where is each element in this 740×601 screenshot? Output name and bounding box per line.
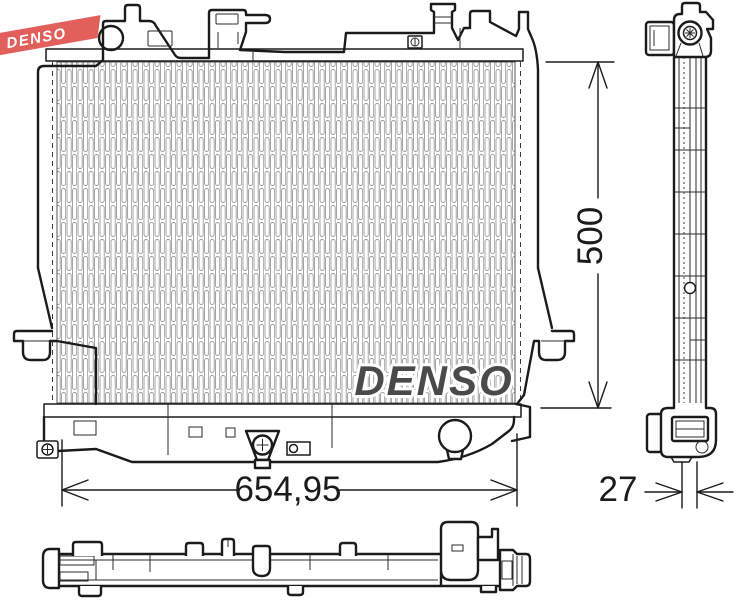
bottom-view-foot-1 <box>79 586 101 596</box>
side-top-cap-assembly <box>646 3 713 57</box>
bottom-tank-slot-2 <box>189 427 202 437</box>
bottom-view-body-edges <box>59 554 500 586</box>
width-dimension-value: 654,95 <box>234 470 341 509</box>
foot-left-bolt <box>37 441 58 458</box>
bottom-view-right-connector <box>500 550 530 590</box>
radiator-technical-drawing-page: DENSO DENSO <box>0 0 740 601</box>
bottom-view-inner-lines <box>59 554 438 580</box>
bottom-view-tab-2 <box>186 543 203 556</box>
bottom-bolt-bracket <box>287 442 310 455</box>
bottom-header-strip <box>44 404 521 417</box>
denso-watermark: DENSO <box>354 357 513 404</box>
bottom-view-pipe <box>441 522 478 586</box>
drain-plug <box>439 420 471 459</box>
radiator-bottom-view <box>43 522 530 596</box>
brand-ribbon: DENSO <box>0 15 104 60</box>
side-column-hole <box>685 283 696 294</box>
depth-dimension-value: 27 <box>599 470 638 509</box>
side-bottom-outlet-assembly <box>647 403 716 462</box>
dimension-depth: 27 <box>599 462 733 509</box>
height-dimension-value: 500 <box>571 207 610 265</box>
dimension-height: 500 <box>541 62 614 408</box>
bottom-tank-slot-3 <box>226 428 235 437</box>
bottom-view-lobe <box>253 546 270 576</box>
depth-extension-lines <box>682 462 697 508</box>
upper-bracket-slot <box>216 14 238 24</box>
technical-drawing-canvas: DENSO DENSO <box>0 0 740 601</box>
core-hatch <box>57 62 515 403</box>
mounting-bracket-right <box>517 268 574 404</box>
radiator-side-view <box>646 3 716 462</box>
bottom-view-tab-4 <box>340 543 356 556</box>
bottom-view-foot-2 <box>288 586 303 595</box>
radiator-front-view: DENSO <box>14 4 574 468</box>
bottom-view-left-cap <box>43 549 59 588</box>
side-column-inner-lines <box>679 57 701 403</box>
bottom-tank-slot-1 <box>74 421 96 435</box>
bottom-view-pipe-bracket <box>478 529 498 560</box>
bottom-view-tab-1 <box>73 542 102 556</box>
top-bolt-symbol <box>408 36 422 48</box>
bottom-view-foot-3 <box>481 586 496 592</box>
